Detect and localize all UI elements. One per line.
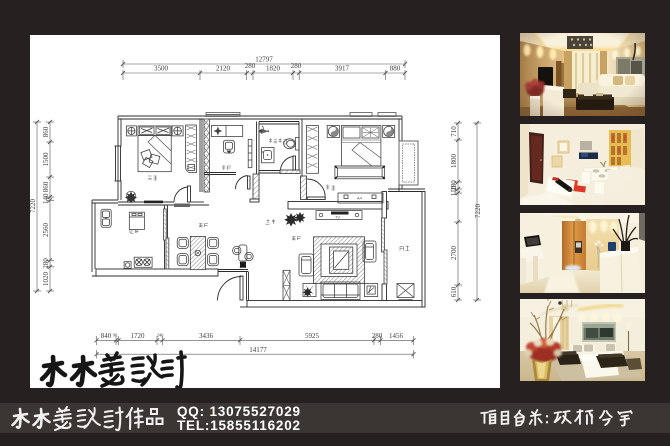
svg-text:840: 840 [101, 332, 112, 340]
svg-text:110: 110 [450, 185, 458, 196]
svg-text:1800: 1800 [450, 154, 458, 169]
svg-text:240: 240 [157, 333, 165, 338]
svg-text:280: 280 [245, 62, 256, 70]
svg-text:3436: 3436 [199, 332, 214, 340]
svg-text:7220: 7220 [30, 199, 37, 214]
svg-text:880: 880 [390, 65, 401, 73]
svg-text:14177: 14177 [249, 346, 267, 354]
svg-text:1720: 1720 [131, 332, 146, 340]
svg-text:1020: 1020 [42, 272, 50, 287]
svg-text:610: 610 [450, 286, 458, 297]
svg-text:5925: 5925 [305, 332, 320, 340]
svg-text:860: 860 [42, 181, 50, 192]
svg-text:280: 280 [372, 332, 383, 340]
svg-text:2700: 2700 [450, 246, 458, 261]
svg-text:2120: 2120 [216, 65, 231, 73]
svg-text:1456: 1456 [389, 332, 404, 340]
svg-text:90: 90 [113, 333, 118, 338]
svg-text:3917: 3917 [335, 65, 350, 73]
svg-text:280: 280 [291, 62, 302, 70]
svg-text:1500: 1500 [42, 152, 50, 167]
svg-text:TV: TV [335, 215, 340, 220]
svg-text:710: 710 [450, 126, 458, 137]
svg-text:A4: A4 [357, 196, 363, 201]
svg-text:7220: 7220 [474, 204, 482, 219]
svg-text:1820: 1820 [266, 65, 281, 73]
svg-text:12797: 12797 [255, 56, 273, 64]
svg-text:3500: 3500 [154, 65, 169, 73]
svg-text:140: 140 [42, 193, 50, 204]
svg-text:280: 280 [42, 258, 50, 269]
svg-text:2560: 2560 [42, 223, 50, 238]
svg-text:860: 860 [42, 126, 50, 137]
